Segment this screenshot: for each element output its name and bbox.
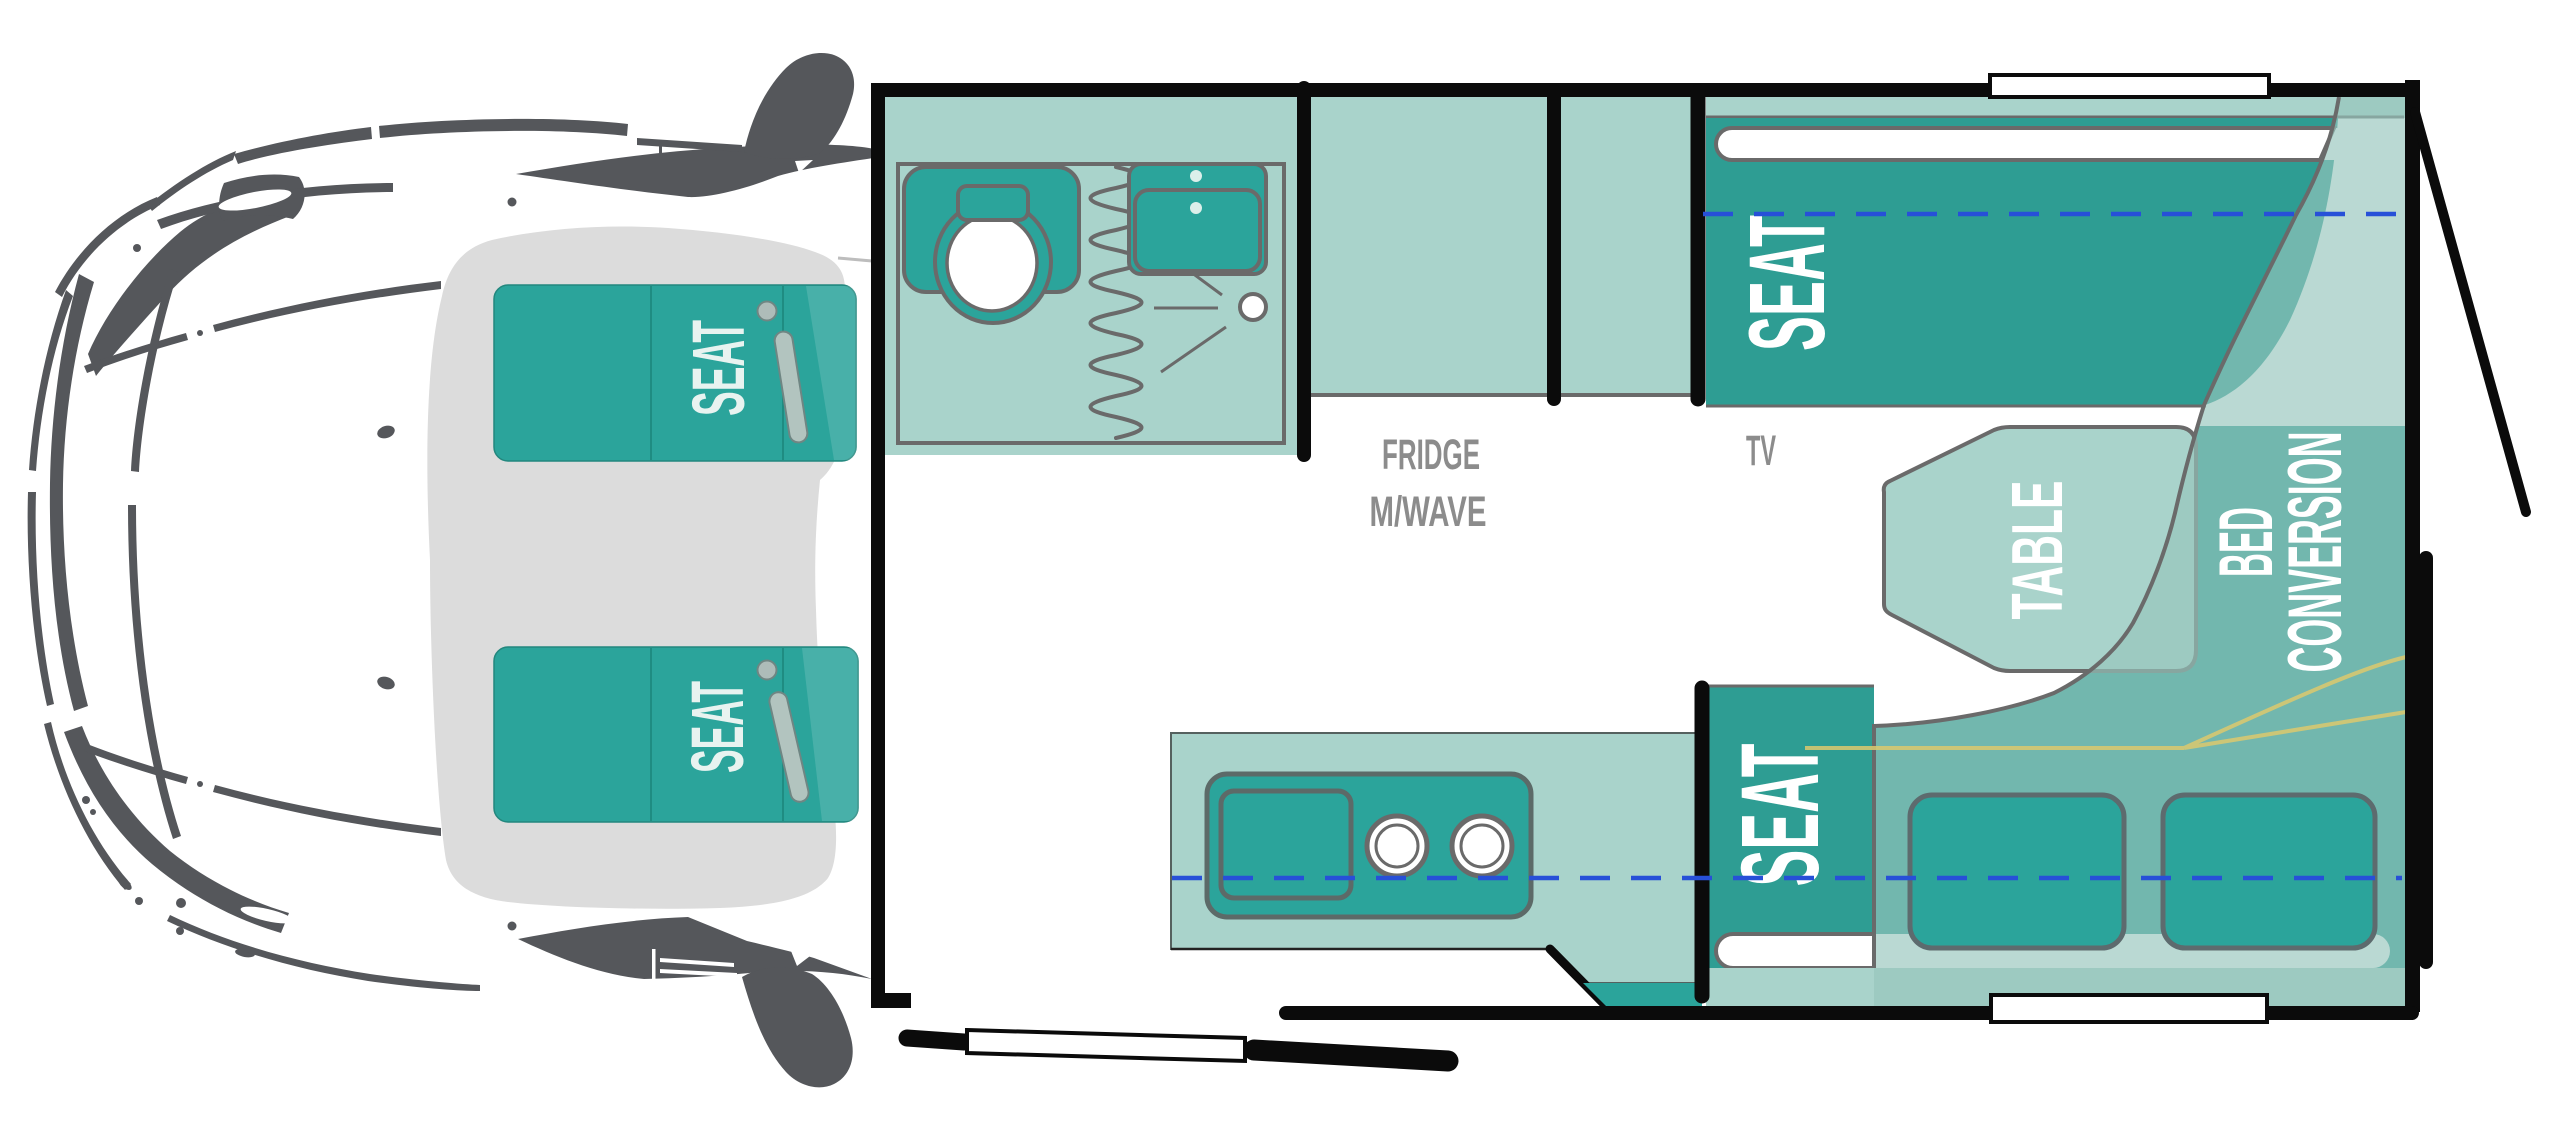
svg-text:SEAT: SEAT <box>1719 744 1842 887</box>
svg-text:TV: TV <box>1746 427 1776 475</box>
svg-text:SEAT: SEAT <box>1728 215 1848 351</box>
svg-text:SEAT: SEAT <box>678 320 760 416</box>
svg-text:SEAT: SEAT <box>677 681 759 773</box>
svg-text:M/WAVE: M/WAVE <box>1370 488 1487 536</box>
svg-text:TABLE: TABLE <box>1997 481 2078 620</box>
svg-text:FRIDGE: FRIDGE <box>1382 431 1480 479</box>
svg-text:CONVERSION: CONVERSION <box>2273 432 2358 673</box>
